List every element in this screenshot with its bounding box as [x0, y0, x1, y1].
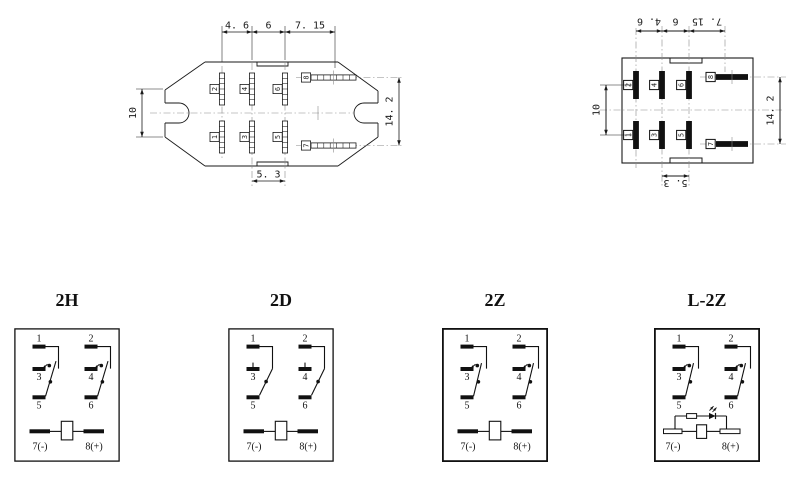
pin-number: 3 [241, 135, 249, 139]
pin-label: 7(-) [33, 442, 48, 453]
contact-dot [264, 380, 268, 384]
dimension-label: 4. 6 [225, 21, 249, 32]
coil-symbol [489, 421, 501, 440]
pin-label: 8(+) [85, 442, 102, 453]
schematic-border [15, 329, 119, 461]
pin-label: 6 [303, 401, 308, 412]
contact-pole: 246 [299, 334, 325, 412]
pin-label: 6 [729, 401, 734, 412]
pin-bar [298, 429, 319, 433]
body-outline [354, 103, 378, 123]
dimension-arrow [397, 78, 401, 83]
schematic-title-2d: 2D [228, 290, 334, 311]
bottom-view-drawing: 246135874. 667. 151014. 25. 3 [128, 21, 404, 187]
pin-label: 3 [465, 372, 470, 383]
coil-circuit: 7(-)8(+) [244, 421, 319, 452]
pin-bar [85, 345, 98, 349]
dimension-arrow [330, 30, 335, 34]
dimension-label: 10 [128, 107, 139, 119]
contact-dot [49, 380, 53, 384]
contact-dot [101, 380, 105, 384]
pin-bar [247, 395, 260, 399]
pin-label: 3 [37, 372, 42, 383]
pin-label: 1 [37, 334, 42, 345]
pin-label: 6 [517, 401, 522, 412]
pin-bar [244, 429, 265, 433]
contact-dot [476, 364, 480, 368]
dimension-label: 4. 6 [637, 16, 661, 27]
pin-bar [664, 429, 683, 434]
pin-bar [299, 345, 312, 349]
pin-bar [720, 429, 740, 434]
pin-number: 7 [302, 143, 310, 147]
contact-dot [48, 364, 52, 368]
contact-pole: 246 [513, 334, 539, 412]
pin-terminal [686, 71, 692, 99]
pin-label: 5 [677, 401, 682, 412]
pin-label: 7(-) [247, 442, 262, 453]
pin-bar [458, 429, 479, 433]
contact-dot [689, 380, 693, 384]
top-view-drawing: 246135874. 667. 151014. 25. 3 [592, 16, 787, 189]
pin-bar [673, 345, 686, 349]
pin-label: 2 [89, 334, 94, 345]
pin-bar [673, 395, 686, 399]
pin-bar [299, 395, 312, 399]
pin-bar [33, 395, 46, 399]
schematic-border [229, 329, 333, 461]
pin-terminal [633, 71, 639, 99]
pin-bar [33, 345, 46, 349]
contact-dot [477, 380, 481, 384]
dimension-arrow [140, 89, 144, 94]
coil-circuit: 7(-)8(+) [458, 421, 533, 452]
pin-label: 5 [37, 401, 42, 412]
body-outline [257, 62, 288, 66]
pin-label: 1 [465, 334, 470, 345]
pin-bar [725, 345, 738, 349]
pin-number: 2 [211, 87, 219, 91]
schematic-2h-diagram: 1352467(-)8(+) [14, 328, 120, 462]
pin-number: 6 [274, 87, 282, 91]
dimension-arrow [778, 77, 782, 82]
dimension-label: 7. 15 [692, 16, 722, 27]
dimension-arrow [604, 85, 608, 90]
contact-pole: 246 [85, 334, 111, 412]
pin-number: 6 [678, 83, 686, 87]
contact-pole: 135 [673, 334, 699, 412]
body-outline [670, 58, 702, 63]
schematic-title-2z: 2Z [442, 290, 548, 311]
pin-number: 1 [211, 135, 219, 139]
pin-label: 8(+) [513, 442, 530, 453]
pin-label: 3 [677, 372, 682, 383]
contact-dot [316, 380, 320, 384]
contact-dot [740, 364, 744, 368]
pin-number: 5 [678, 133, 686, 137]
pin-terminal [686, 121, 692, 149]
dimension-arrow [252, 30, 257, 34]
dimension-arrow [657, 29, 662, 33]
body-outline [257, 162, 288, 166]
pin-label: 2 [517, 334, 522, 345]
pin-label: 1 [251, 334, 256, 345]
schematic-l2z-diagram: 1352467(-)8(+) [654, 328, 760, 462]
contact-dot [529, 380, 533, 384]
contact-pole: 135 [247, 334, 273, 412]
dimension-arrow [662, 29, 667, 33]
coil-symbol [275, 421, 287, 440]
pin-number: 3 [651, 133, 659, 137]
pin-terminal [633, 121, 639, 149]
pin-bar [461, 395, 474, 399]
pin-label: 6 [89, 401, 94, 412]
body-outline [670, 158, 702, 163]
coil-circuit-led: 7(-)8(+) [664, 406, 741, 452]
schematic-2d-diagram: 1352467(-)8(+) [228, 328, 334, 462]
dimension-arrow [285, 30, 290, 34]
schematic-border [443, 329, 547, 461]
dimension-arrow [397, 140, 401, 145]
pin-label: 4 [517, 372, 522, 383]
pin-label: 5 [465, 401, 470, 412]
schematic-2z-diagram: 1352467(-)8(+) [442, 328, 548, 462]
pin-label: 1 [677, 334, 682, 345]
pin-terminal [659, 121, 665, 149]
coil-symbol [61, 421, 73, 440]
dimension-arrow [636, 29, 641, 33]
pin-bar [725, 395, 738, 399]
dimension-arrow [280, 179, 285, 183]
dimension-label: 10 [592, 104, 603, 116]
resistor-symbol [687, 414, 697, 419]
contact-dot [688, 364, 692, 368]
dimension-arrow [720, 29, 725, 33]
contact-pole: 135 [33, 334, 59, 412]
dimension-arrow [280, 30, 285, 34]
pin-bar [299, 367, 312, 371]
contact-dot [528, 364, 532, 368]
pin-number: 8 [302, 75, 310, 79]
dimension-arrow [684, 29, 689, 33]
contact-pole: 135 [461, 334, 487, 412]
dimension-label: 14. 2 [766, 95, 777, 125]
pin-bar [247, 345, 260, 349]
pin-label: 4 [729, 372, 734, 383]
pin-number: 4 [651, 83, 659, 87]
pin-label: 2 [303, 334, 308, 345]
dimension-label: 6 [672, 16, 678, 27]
coil-symbol [697, 425, 707, 439]
mechanical-drawings: 246135874. 667. 151014. 25. 3246135874. … [0, 0, 803, 270]
dimension-label: 14. 2 [385, 96, 396, 126]
pin-label: 7(-) [461, 442, 476, 453]
pin-number: 7 [707, 142, 715, 146]
dimension-arrow [140, 132, 144, 137]
contact-pole: 246 [725, 334, 751, 412]
dimension-arrow [778, 139, 782, 144]
pin-bar [512, 429, 533, 433]
pin-number: 5 [274, 135, 282, 139]
pin-label: 2 [729, 334, 734, 345]
pin-label: 3 [251, 372, 256, 383]
pin-label: 8(+) [722, 442, 739, 453]
pin-bar [461, 345, 474, 349]
pin-number: 8 [707, 75, 715, 79]
dimension-label: 7. 15 [295, 21, 325, 32]
pin-label: 7(-) [666, 442, 681, 453]
pin-terminal [659, 71, 665, 99]
pin-label: 4 [89, 372, 94, 383]
pin-bar [513, 395, 526, 399]
led-symbol [709, 406, 717, 419]
pin-bar [84, 429, 105, 433]
schematic-title-l2z: L-2Z [654, 290, 760, 311]
dimension-arrow [689, 29, 694, 33]
pin-label: 5 [251, 401, 256, 412]
schematic-title-2h: 2H [14, 290, 120, 311]
pin-bar [85, 395, 98, 399]
contact-dot [741, 380, 745, 384]
dimension-label: 5. 3 [256, 170, 280, 181]
contact-dot [100, 364, 104, 368]
dimension-label: 5. 3 [663, 177, 687, 188]
pin-bar [247, 367, 260, 371]
pin-bar [513, 345, 526, 349]
coil-circuit: 7(-)8(+) [30, 421, 105, 452]
pin-bar [30, 429, 51, 433]
dimension-arrow [604, 130, 608, 135]
pin-label: 4 [303, 372, 308, 383]
dimension-label: 6 [265, 21, 271, 32]
pin-number: 4 [241, 87, 249, 91]
pin-label: 8(+) [299, 442, 316, 453]
